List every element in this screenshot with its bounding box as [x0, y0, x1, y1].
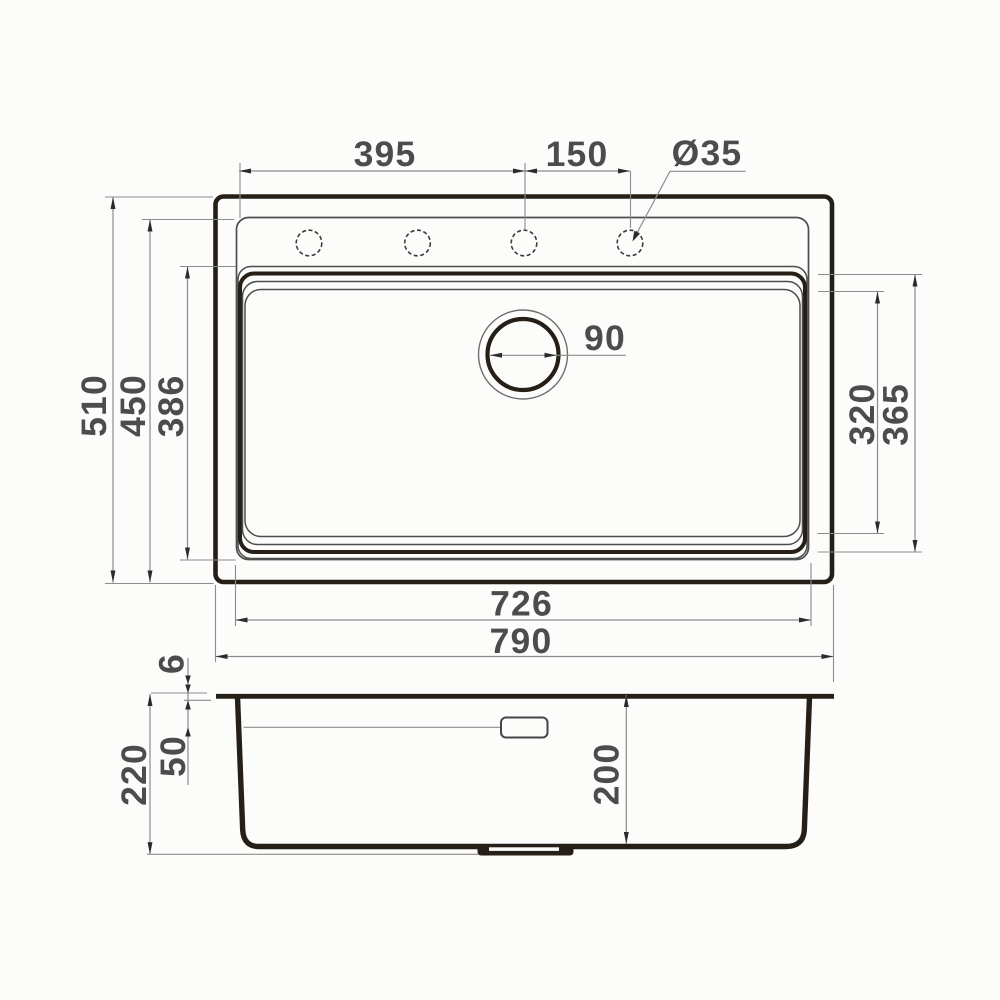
svg-text:510: 510: [74, 374, 114, 437]
svg-text:450: 450: [113, 374, 153, 437]
svg-text:200: 200: [587, 743, 627, 806]
svg-text:Ø35: Ø35: [672, 133, 743, 173]
svg-text:395: 395: [354, 134, 417, 174]
svg-text:726: 726: [490, 584, 553, 624]
svg-text:386: 386: [151, 375, 191, 438]
svg-text:365: 365: [876, 383, 916, 446]
svg-text:90: 90: [584, 318, 626, 358]
svg-text:790: 790: [490, 621, 553, 661]
svg-text:220: 220: [114, 743, 154, 806]
svg-text:6: 6: [152, 653, 192, 674]
svg-text:50: 50: [153, 735, 193, 777]
svg-text:150: 150: [546, 134, 609, 174]
